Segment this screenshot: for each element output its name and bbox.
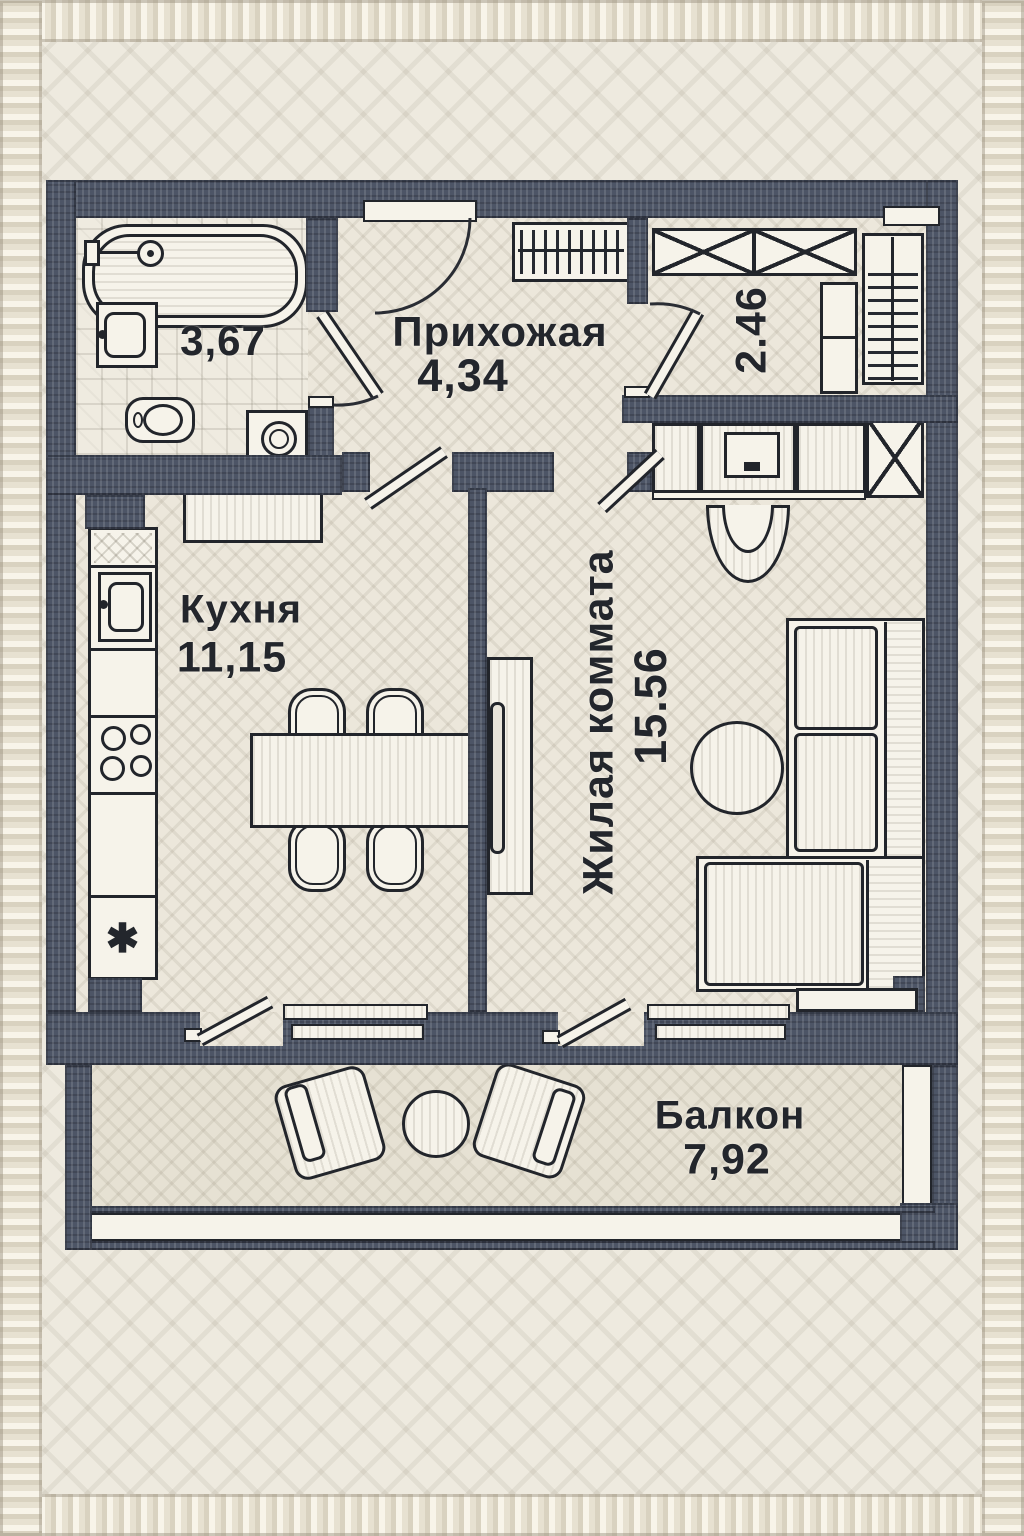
dining-chair-3-seat xyxy=(295,825,339,885)
cabinet-ledge xyxy=(652,491,866,500)
counter-divider-3 xyxy=(90,715,156,718)
kitchen-window-sill-2 xyxy=(291,1024,424,1040)
hallway-area-label: 4,34 xyxy=(417,350,509,402)
balcony-table xyxy=(402,1090,470,1158)
wall-right xyxy=(926,180,958,1065)
kitchen-area-label: 11,15 xyxy=(177,634,287,683)
wardrobe-door-sill xyxy=(624,386,650,398)
balcony-rail-bottom-line xyxy=(90,1241,935,1250)
bathroom-sink-tap xyxy=(98,330,107,339)
sofa-cushion-2 xyxy=(794,733,878,852)
kitchen-sink-basin xyxy=(108,582,144,632)
living-cabinet-2 xyxy=(796,423,866,493)
stove-burner-4 xyxy=(130,755,152,777)
wall-bathroom-bottom xyxy=(46,455,342,495)
counter-divider-2 xyxy=(90,648,156,651)
knit-border-left xyxy=(0,0,42,1536)
toilet-flush xyxy=(133,412,143,428)
bathroom-door-sill xyxy=(308,396,334,408)
balcony-railing xyxy=(90,1213,935,1241)
counter-divider-1 xyxy=(90,565,156,568)
balcony-glazing-right xyxy=(902,1065,932,1205)
balcony-door-hinge-left xyxy=(184,1028,202,1042)
stove-burner-2 xyxy=(130,724,151,745)
bathroom-area-label: 3,67 xyxy=(180,317,266,365)
balcony-door-gap-left xyxy=(200,1012,283,1046)
bathroom-sink-basin xyxy=(104,312,146,358)
entrance-threshold xyxy=(363,200,477,222)
balcony-area-label: 7,92 xyxy=(683,1136,771,1185)
sofa-back-rest xyxy=(884,622,921,856)
kitchen-worktop xyxy=(94,533,152,563)
dining-chair-4-seat xyxy=(373,825,417,885)
wall-hall-stub-b xyxy=(452,452,554,492)
kitchen-wall-cabinet xyxy=(183,488,323,543)
living-window-sill-1 xyxy=(647,1004,790,1020)
wardrobe-hanging-section-2 xyxy=(753,228,857,276)
balcony-name-label: Балкон xyxy=(655,1094,806,1139)
counter-divider-4 xyxy=(90,792,156,795)
wall-bottom xyxy=(46,1012,958,1065)
kitchen-radiator-block xyxy=(88,978,142,1012)
knit-border-right xyxy=(982,0,1024,1536)
sofa-arm-rest xyxy=(866,860,921,988)
wall-hall-stub-a xyxy=(342,452,370,492)
knit-border-top xyxy=(0,0,1024,42)
wall-hall-stub-c xyxy=(627,452,652,492)
desk-drawer-handle xyxy=(744,462,760,471)
hallway-radiator-bar xyxy=(518,249,624,252)
wall-left xyxy=(46,180,76,1012)
bathtub-drain-dot xyxy=(147,250,154,257)
balcony-wall-left xyxy=(65,1065,92,1250)
hallway-radiator-fins xyxy=(520,230,622,274)
top-shelf-slab xyxy=(883,206,940,226)
kitchen-wall-pier xyxy=(85,495,145,529)
stove-burner-1 xyxy=(101,726,126,751)
toilet-bowl xyxy=(143,404,183,436)
knit-border-bottom xyxy=(0,1494,1024,1536)
kitchen-window-sill-1 xyxy=(283,1004,428,1020)
wardrobe-hanging-section-1 xyxy=(652,228,755,276)
balcony-rail-top-line xyxy=(90,1206,935,1213)
wall-wardrobe-bottom xyxy=(622,395,958,423)
stove-burner-3 xyxy=(100,756,125,781)
floor-plan: 3,67 Прихожая 4,34 2.46 Кухня 11,15 Жила… xyxy=(0,0,1024,1536)
living-cabinet-1 xyxy=(652,423,700,493)
kitchen-name-label: Кухня xyxy=(180,588,302,633)
fridge-symbol: ✱ xyxy=(106,916,141,962)
balcony-door-gap-right xyxy=(558,1012,644,1046)
wall-wardrobe-left xyxy=(627,218,648,304)
wall-top xyxy=(46,180,958,218)
balcony-door-hinge-right xyxy=(542,1030,560,1044)
desk-drawer xyxy=(724,432,780,478)
kitchen-sink-tap xyxy=(99,600,108,609)
wardrobe-cabinet-divider xyxy=(823,336,855,339)
wall-kitchen-living-divider xyxy=(468,488,487,1012)
sofa-foot-bar xyxy=(796,988,918,1012)
living-name-label: Жилая коммата xyxy=(575,549,624,894)
living-area-label: 15.56 xyxy=(625,647,677,765)
sofa-cushion-1 xyxy=(794,626,878,730)
wardrobe-rail xyxy=(891,237,894,381)
sofa-cushion-3 xyxy=(704,862,864,986)
living-window-sill-2 xyxy=(655,1024,786,1040)
living-wardrobe xyxy=(866,418,924,498)
hallway-name-label: Прихожая xyxy=(392,308,607,356)
counter-divider-5 xyxy=(90,895,156,898)
tv-icon xyxy=(490,702,505,854)
pouf xyxy=(690,721,784,815)
washing-machine-drum xyxy=(269,429,289,449)
wardrobe-area-label: 2.46 xyxy=(728,286,777,374)
bathtub-faucet-pipe xyxy=(98,251,140,254)
wall-bathroom-right xyxy=(306,218,338,312)
dining-table xyxy=(250,733,471,828)
